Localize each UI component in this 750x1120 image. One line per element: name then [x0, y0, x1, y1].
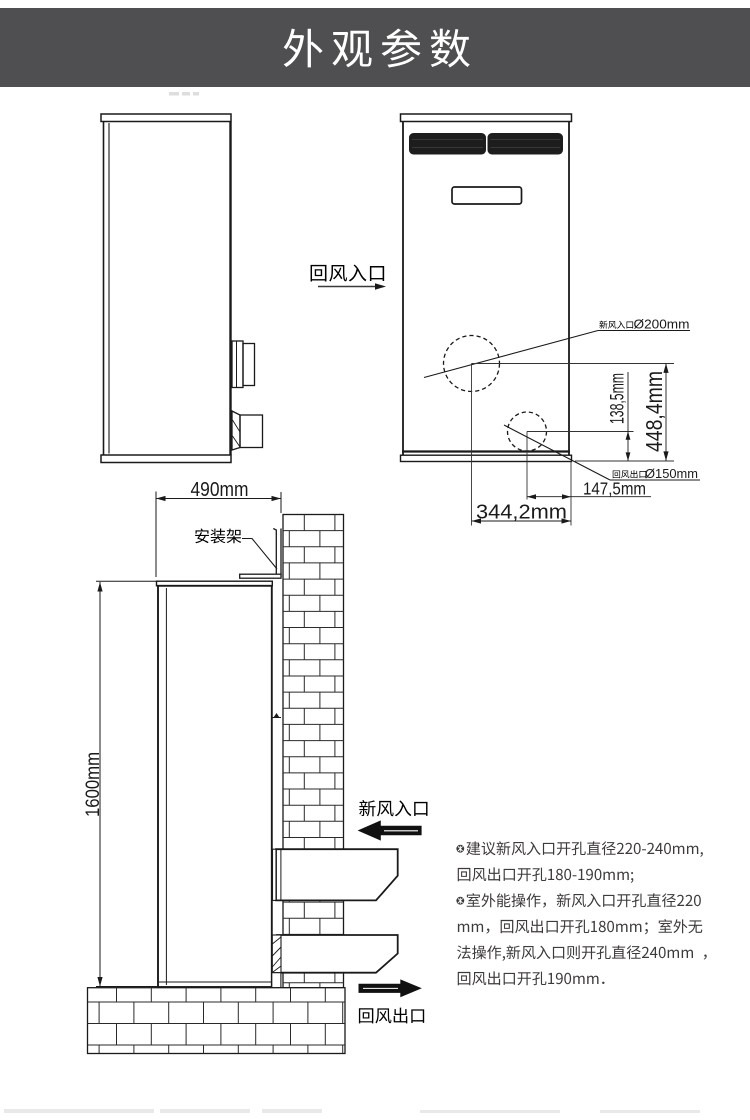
svg-text:344,2mm: 344,2mm: [476, 502, 567, 524]
svg-text:Ø150mm: Ø150mm: [645, 467, 698, 481]
svg-text:1600mm: 1600mm: [83, 752, 104, 817]
svg-text:147,5mm: 147,5mm: [583, 479, 646, 499]
svg-text:448,4mm: 448,4mm: [641, 371, 667, 452]
svg-text:138,5mm: 138,5mm: [607, 373, 629, 424]
svg-text:490mm: 490mm: [191, 479, 249, 501]
svg-text:Ø200mm: Ø200mm: [634, 318, 690, 332]
